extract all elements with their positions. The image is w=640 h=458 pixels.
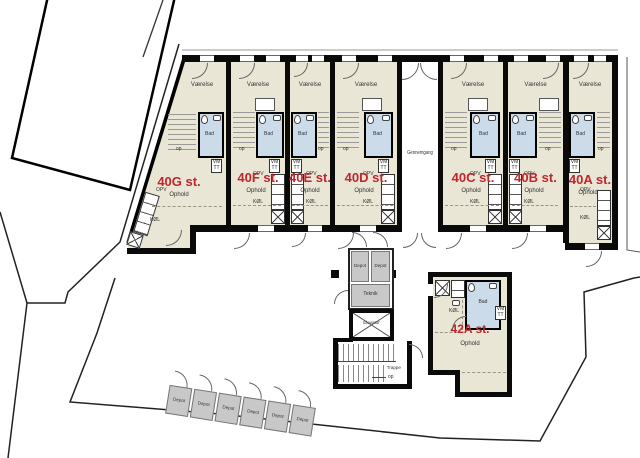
internal-stairs — [233, 112, 255, 150]
room-label-ophold: Ophold — [290, 188, 330, 195]
window — [450, 55, 464, 62]
toilet-icon — [468, 283, 475, 292]
window — [312, 55, 324, 62]
unit-42a-floor — [460, 373, 507, 392]
depot-shed-box: Depot — [165, 385, 192, 417]
dryer-label: TT — [571, 166, 577, 172]
room-label-bad: Bad — [517, 132, 526, 137]
stair-block-wall — [333, 384, 412, 389]
depot-label: Depot — [247, 410, 260, 416]
sink-icon — [273, 115, 281, 121]
kitchen-hatch-box — [488, 210, 502, 224]
unit-label-40e: 40E st. — [283, 170, 337, 185]
internal-stairs — [318, 112, 329, 150]
stairs-up-label: op — [318, 147, 324, 152]
internal-stairs — [168, 114, 196, 150]
window — [585, 243, 599, 250]
sink-icon — [526, 115, 534, 121]
depot-label: Depot — [271, 413, 284, 419]
wardrobe — [539, 98, 559, 111]
passage-wall-west — [397, 62, 402, 232]
fridge-label: KØL — [580, 216, 590, 221]
dashed-line — [337, 205, 393, 206]
stair-divider — [338, 361, 396, 362]
room-label-vaerelse: Værelse — [290, 82, 330, 89]
depot-shed-box: Depot — [264, 400, 291, 432]
kitchen-hatch-box — [381, 210, 395, 224]
stairs-up-label: op — [343, 147, 349, 152]
depot-label: Depot — [352, 264, 368, 269]
room-label-bad: Bad — [205, 132, 214, 137]
dryer-label: TT — [213, 166, 219, 172]
elevator-label: Elevator — [355, 321, 388, 326]
wall-42a-west — [428, 272, 433, 284]
fridge-label: KØL — [449, 309, 459, 314]
sink-icon — [382, 115, 390, 121]
dashed-line — [292, 205, 328, 206]
window — [574, 55, 588, 62]
sink-icon — [488, 115, 496, 121]
depot-label: Depot — [222, 406, 235, 412]
passage-label: Gennemgang — [405, 151, 436, 156]
kitchen-hatch-box — [291, 210, 304, 224]
stairs-up-label: op — [451, 147, 457, 152]
stair-flight — [338, 365, 384, 382]
room-label-vaerelse: Værelse — [335, 82, 397, 89]
sink-icon — [306, 115, 314, 121]
unit-label-40c: 40C st. — [443, 170, 503, 185]
wall-step-40a — [563, 225, 569, 243]
depot-shed-box: Depot — [289, 404, 316, 436]
sink-icon — [584, 115, 592, 121]
south-wall-40g — [127, 248, 196, 254]
window — [360, 225, 376, 232]
window — [342, 55, 356, 62]
wall-42a-east — [507, 272, 512, 397]
room-label-vaerelse: Værelse — [180, 82, 224, 89]
dashed-line — [462, 372, 506, 373]
room-label-bad: Bad — [373, 132, 382, 137]
wardrobe — [468, 98, 488, 111]
window — [594, 55, 606, 62]
unit-label-40g: 40G st. — [143, 174, 215, 189]
unit-label-40b: 40B st. — [508, 170, 563, 185]
window — [484, 55, 498, 62]
toilet-icon — [201, 115, 208, 124]
room-label-ophold: Ophold — [568, 190, 608, 197]
dashed-line — [152, 206, 222, 207]
dashed-line — [512, 205, 558, 206]
window — [308, 225, 322, 232]
wall-step-40g — [190, 232, 196, 248]
teknik-label: Teknik — [351, 292, 390, 297]
dashed-line — [445, 205, 499, 206]
washer-dryer-box: VMTT — [569, 159, 580, 173]
stairs-label: Trappe — [387, 366, 401, 371]
fridge-label: KØL — [150, 218, 160, 223]
room-label-vaerelse: Værelse — [443, 82, 503, 89]
room-label-ophold: Ophold — [231, 188, 281, 195]
room-label-bad: Bad — [479, 132, 488, 137]
room-label-ophold: Ophold — [443, 188, 499, 195]
kitchen-hatch-box — [597, 226, 611, 240]
window — [470, 225, 486, 232]
internal-stairs — [539, 112, 561, 150]
unit-label-40f: 40F st. — [231, 170, 285, 185]
room-label-bad: Bad — [264, 132, 273, 137]
room-label-ophold: Ophold — [150, 192, 208, 199]
kitchen-hatch-box — [509, 210, 522, 224]
room-label-vaerelse: Værelse — [508, 82, 563, 89]
unit-label-42a: 42A st. — [433, 322, 507, 336]
column — [331, 270, 339, 278]
sink-icon — [489, 283, 497, 289]
wardrobe — [362, 98, 382, 111]
stairs-up-label: op — [176, 147, 182, 152]
window — [296, 55, 308, 62]
toilet-icon — [473, 115, 480, 124]
depot-shed-box: Depot — [215, 393, 242, 425]
room-label-vaerelse: Værelse — [231, 82, 285, 89]
room-label-ophold: Ophold — [335, 188, 393, 195]
depot-label: Depot — [296, 417, 309, 423]
depot-label: Depot — [372, 264, 389, 269]
east-wall — [612, 55, 618, 250]
toilet-icon — [367, 115, 374, 124]
unit-label-40a: 40A st. — [566, 172, 614, 187]
room-label-ophold: Ophold — [508, 188, 560, 195]
window — [200, 55, 214, 62]
room-label-bad: Bad — [576, 132, 585, 137]
kitchen-hatch-box — [271, 210, 285, 224]
window — [514, 55, 528, 62]
floor-plan: Værelse op Bad VMTT OPV KØL 40G st. Opho… — [0, 0, 640, 458]
depot-shed-box: Depot — [239, 397, 266, 429]
dashed-line — [233, 205, 281, 206]
depot-label: Depot — [172, 398, 185, 404]
window — [258, 225, 274, 232]
passage-floor — [402, 62, 438, 232]
stairs-up-label: op — [239, 147, 245, 152]
internal-stairs — [337, 112, 359, 150]
internal-stairs — [445, 112, 467, 150]
depot-label: Depot — [197, 402, 210, 408]
stair-flight — [338, 344, 396, 361]
elevator-wall — [390, 309, 394, 340]
elevator-wall — [349, 337, 394, 341]
window — [378, 55, 392, 62]
room-label-ophold: Ophold — [433, 341, 507, 348]
appliance-box — [452, 300, 460, 306]
room-label-bad: Bad — [298, 132, 307, 137]
toilet-icon — [512, 115, 519, 124]
stairs-up-label: op — [598, 147, 604, 152]
room-label-vaerelse: Værelse — [568, 82, 612, 89]
depot-shed-box: Depot — [190, 389, 217, 421]
wall-42a-north — [428, 272, 512, 277]
window — [546, 55, 560, 62]
kitchen-counter — [451, 280, 465, 298]
internal-stairs — [597, 112, 610, 150]
dashed-line — [570, 206, 596, 207]
washer-dryer-box: VMTT — [495, 306, 506, 320]
dryer-label: TT — [497, 313, 503, 319]
wall-42a-south — [455, 392, 512, 397]
wardrobe — [255, 98, 275, 111]
unit-label-40d: 40D st. — [335, 170, 397, 185]
sink-icon — [213, 115, 221, 121]
window — [530, 225, 546, 232]
stairs-up-label: op — [545, 147, 551, 152]
window — [240, 55, 254, 62]
toilet-icon — [259, 115, 266, 124]
stairs-direction-arrow — [372, 377, 386, 378]
toilet-icon — [294, 115, 301, 124]
toilet-icon — [572, 115, 579, 124]
room-label-bad: Bad — [465, 300, 501, 305]
window — [266, 55, 280, 62]
washer-dryer-box: VMTT — [211, 159, 222, 173]
stairs-up-label: op — [388, 375, 394, 380]
